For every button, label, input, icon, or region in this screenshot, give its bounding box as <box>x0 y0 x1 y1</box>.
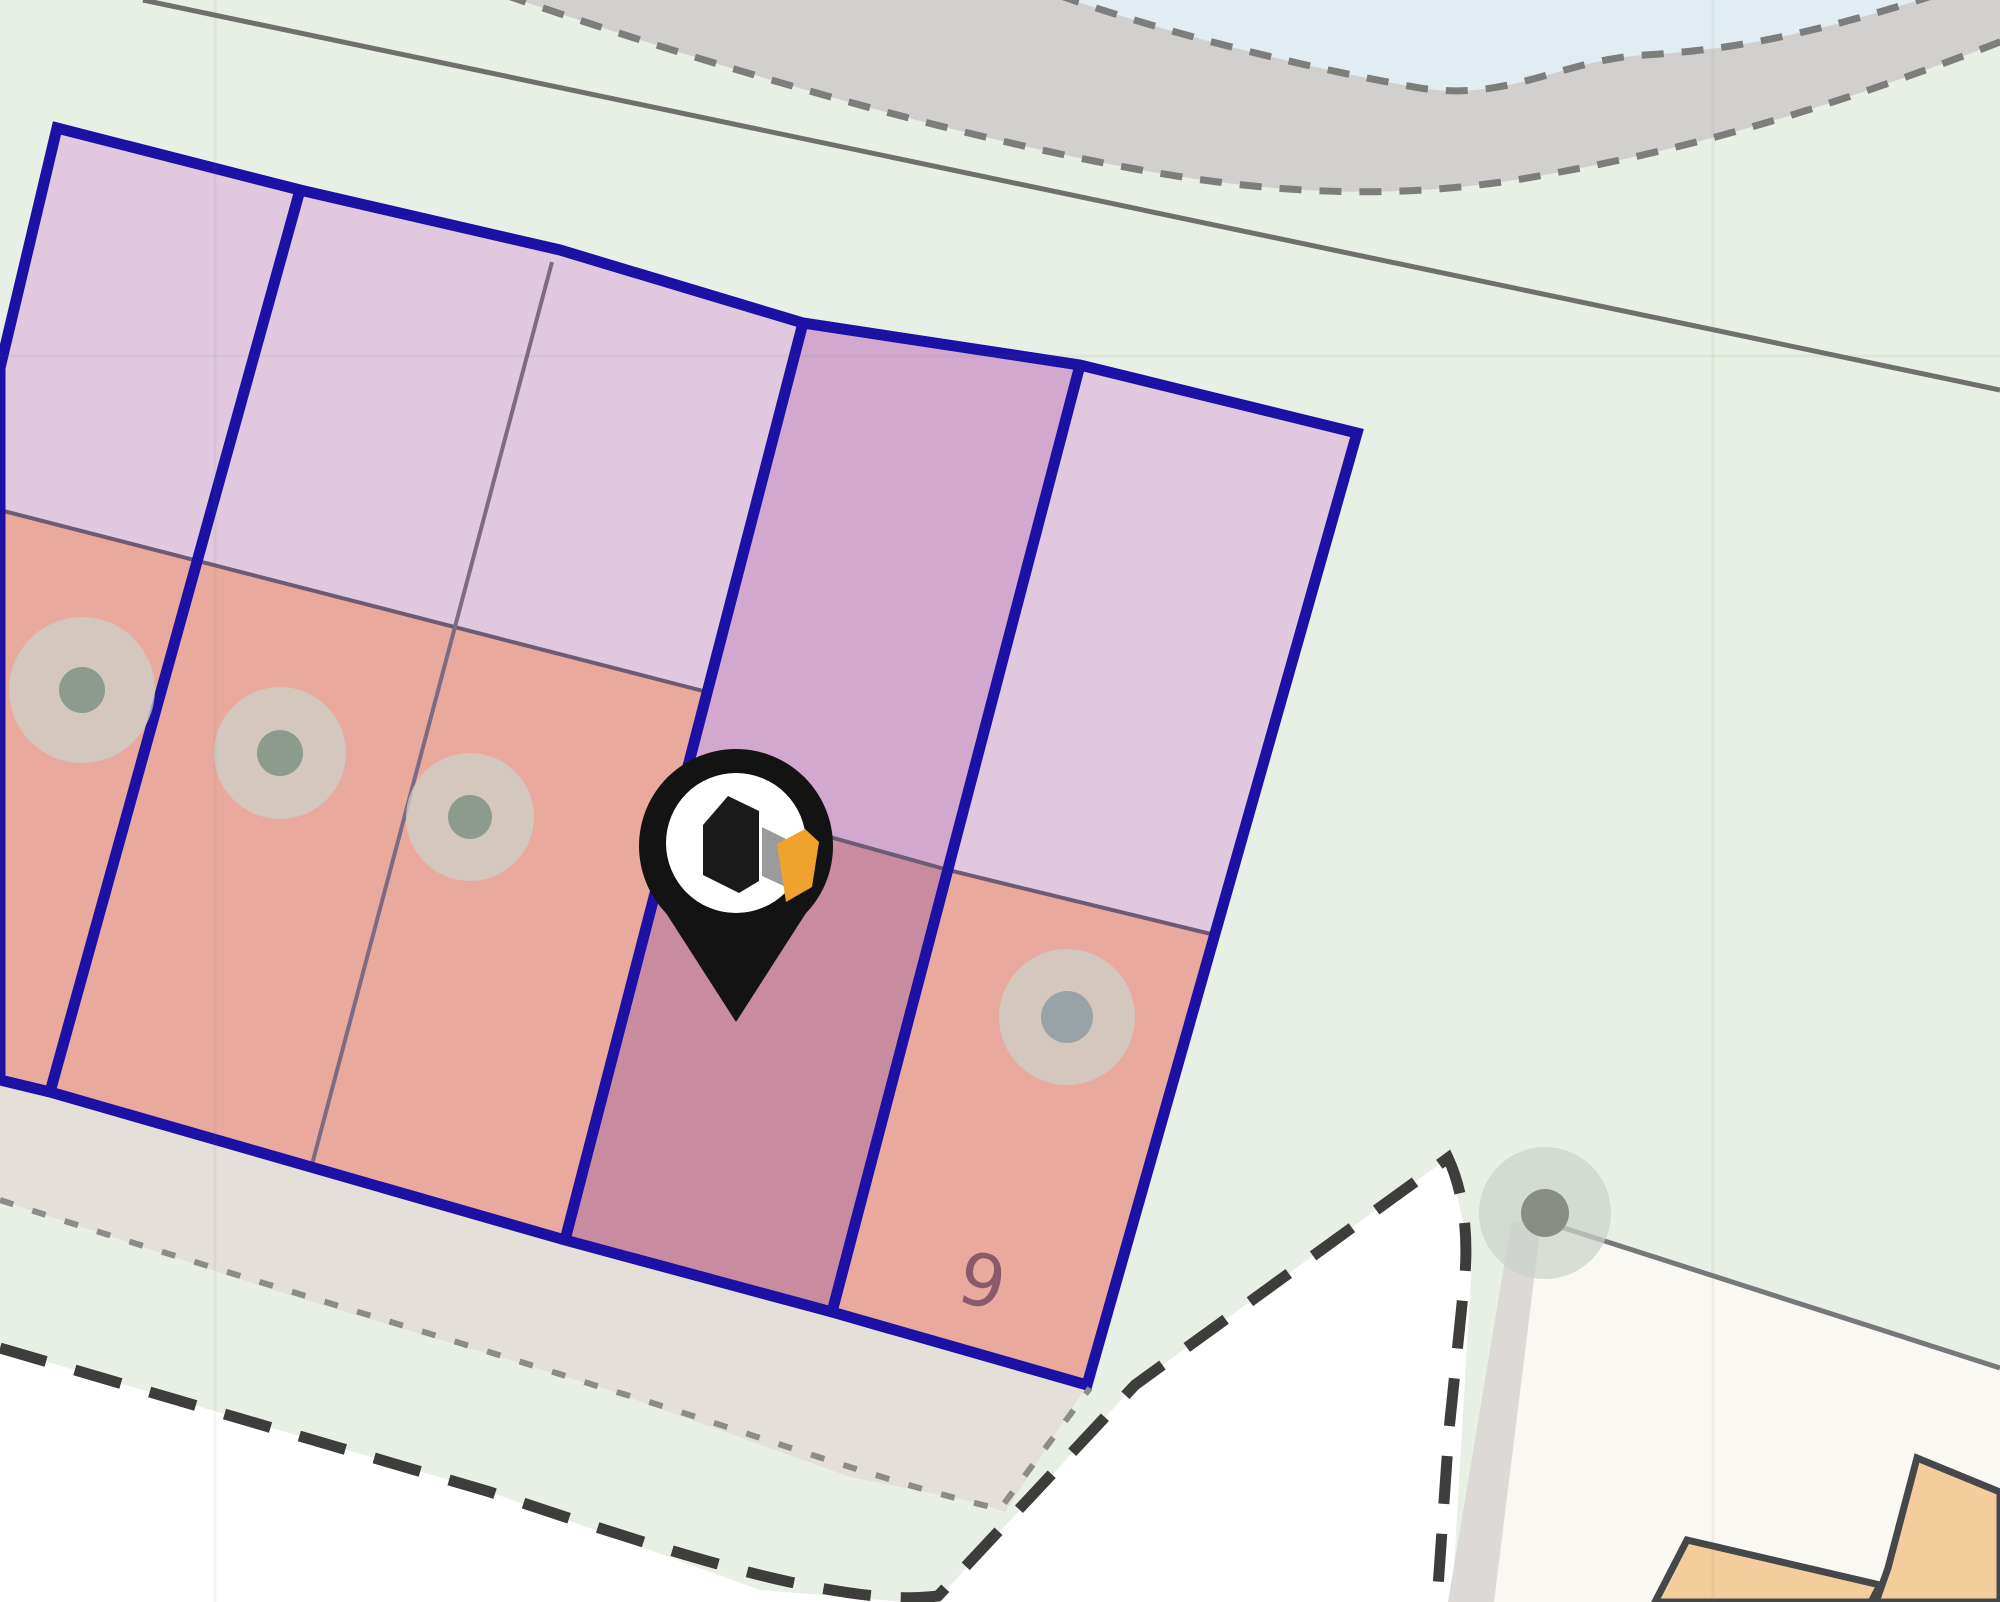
map-canvas[interactable]: 9 <box>0 0 2000 1602</box>
tree-icon <box>1479 1147 1611 1279</box>
tree-icon <box>406 753 534 881</box>
tree-icon <box>999 949 1135 1085</box>
map-view[interactable]: 9 <box>0 0 2000 1602</box>
tree-icon <box>214 687 346 819</box>
tree-icon <box>9 617 155 763</box>
